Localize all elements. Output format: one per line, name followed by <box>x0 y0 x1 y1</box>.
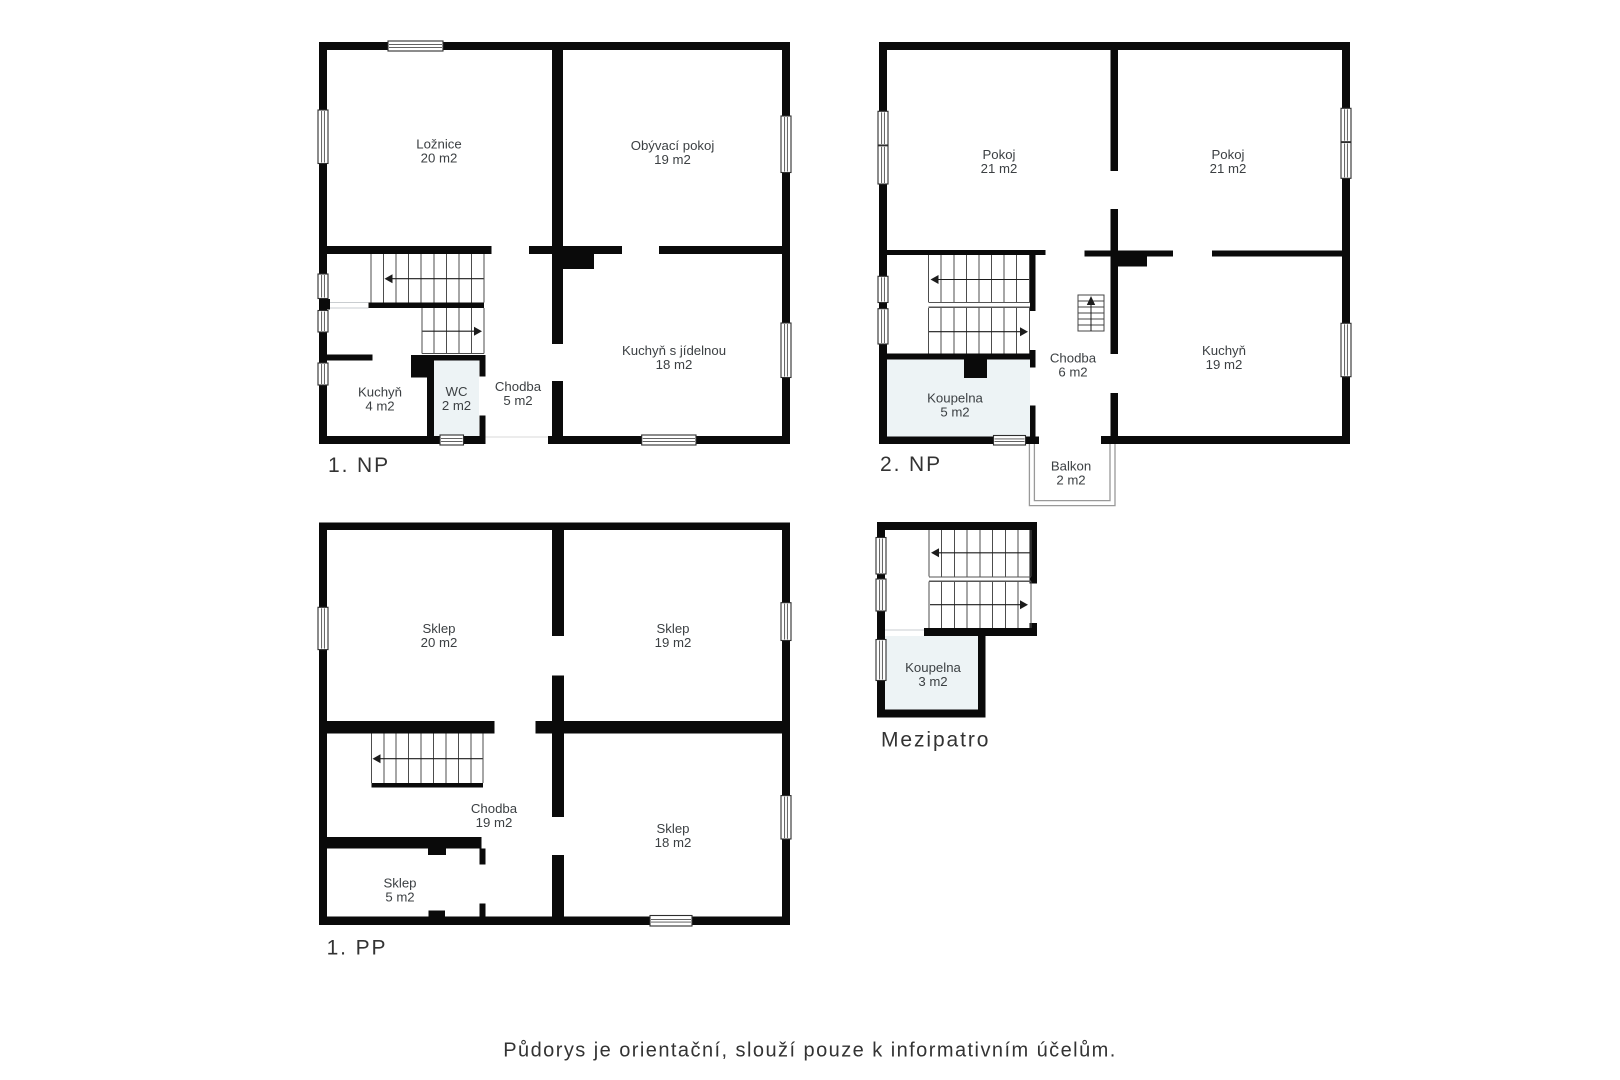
svg-text:1. NP: 1. NP <box>328 454 390 477</box>
svg-text:21 m2: 21 m2 <box>981 161 1018 176</box>
svg-text:5 m2: 5 m2 <box>385 890 414 905</box>
svg-text:Chodba: Chodba <box>495 379 542 394</box>
svg-text:20 m2: 20 m2 <box>421 151 458 166</box>
svg-text:2 m2: 2 m2 <box>442 398 471 413</box>
svg-text:Ložnice: Ložnice <box>416 137 461 152</box>
svg-text:Balkon: Balkon <box>1051 458 1091 473</box>
svg-text:3 m2: 3 m2 <box>918 674 947 689</box>
svg-text:5 m2: 5 m2 <box>503 393 532 408</box>
svg-text:Sklep: Sklep <box>384 876 417 891</box>
svg-text:Pokoj: Pokoj <box>983 147 1016 162</box>
svg-text:19 m2: 19 m2 <box>1206 357 1243 372</box>
svg-text:Kuchyň: Kuchyň <box>358 385 402 400</box>
svg-text:Kuchyň s jídelnou: Kuchyň s jídelnou <box>622 343 726 358</box>
svg-text:20 m2: 20 m2 <box>421 635 458 650</box>
svg-text:Kuchyň: Kuchyň <box>1202 343 1246 358</box>
svg-text:21 m2: 21 m2 <box>1210 161 1247 176</box>
svg-text:18 m2: 18 m2 <box>655 835 692 850</box>
svg-text:Obývací pokoj: Obývací pokoj <box>631 138 715 153</box>
svg-text:Koupelna: Koupelna <box>905 660 961 675</box>
svg-text:Chodba: Chodba <box>471 801 518 816</box>
svg-text:WC: WC <box>446 384 468 399</box>
svg-text:6 m2: 6 m2 <box>1058 365 1087 380</box>
svg-text:19 m2: 19 m2 <box>476 815 513 830</box>
svg-text:4 m2: 4 m2 <box>365 399 394 414</box>
svg-text:18 m2: 18 m2 <box>656 357 693 372</box>
svg-text:Půdorys je orientační, slouží: Půdorys je orientační, slouží pouze k in… <box>503 1040 1117 1062</box>
svg-text:5 m2: 5 m2 <box>940 404 969 419</box>
svg-text:Mezipatro: Mezipatro <box>881 729 990 752</box>
svg-text:Pokoj: Pokoj <box>1212 147 1245 162</box>
svg-text:19 m2: 19 m2 <box>655 635 692 650</box>
svg-text:Sklep: Sklep <box>657 621 690 636</box>
svg-text:2. NP: 2. NP <box>880 453 942 476</box>
svg-text:19 m2: 19 m2 <box>654 152 691 167</box>
svg-text:Chodba: Chodba <box>1050 351 1097 366</box>
svg-text:Koupelna: Koupelna <box>927 390 983 405</box>
svg-text:Sklep: Sklep <box>657 821 690 836</box>
svg-text:1. PP: 1. PP <box>327 937 388 960</box>
svg-text:Sklep: Sklep <box>423 621 456 636</box>
svg-text:2 m2: 2 m2 <box>1056 472 1085 487</box>
